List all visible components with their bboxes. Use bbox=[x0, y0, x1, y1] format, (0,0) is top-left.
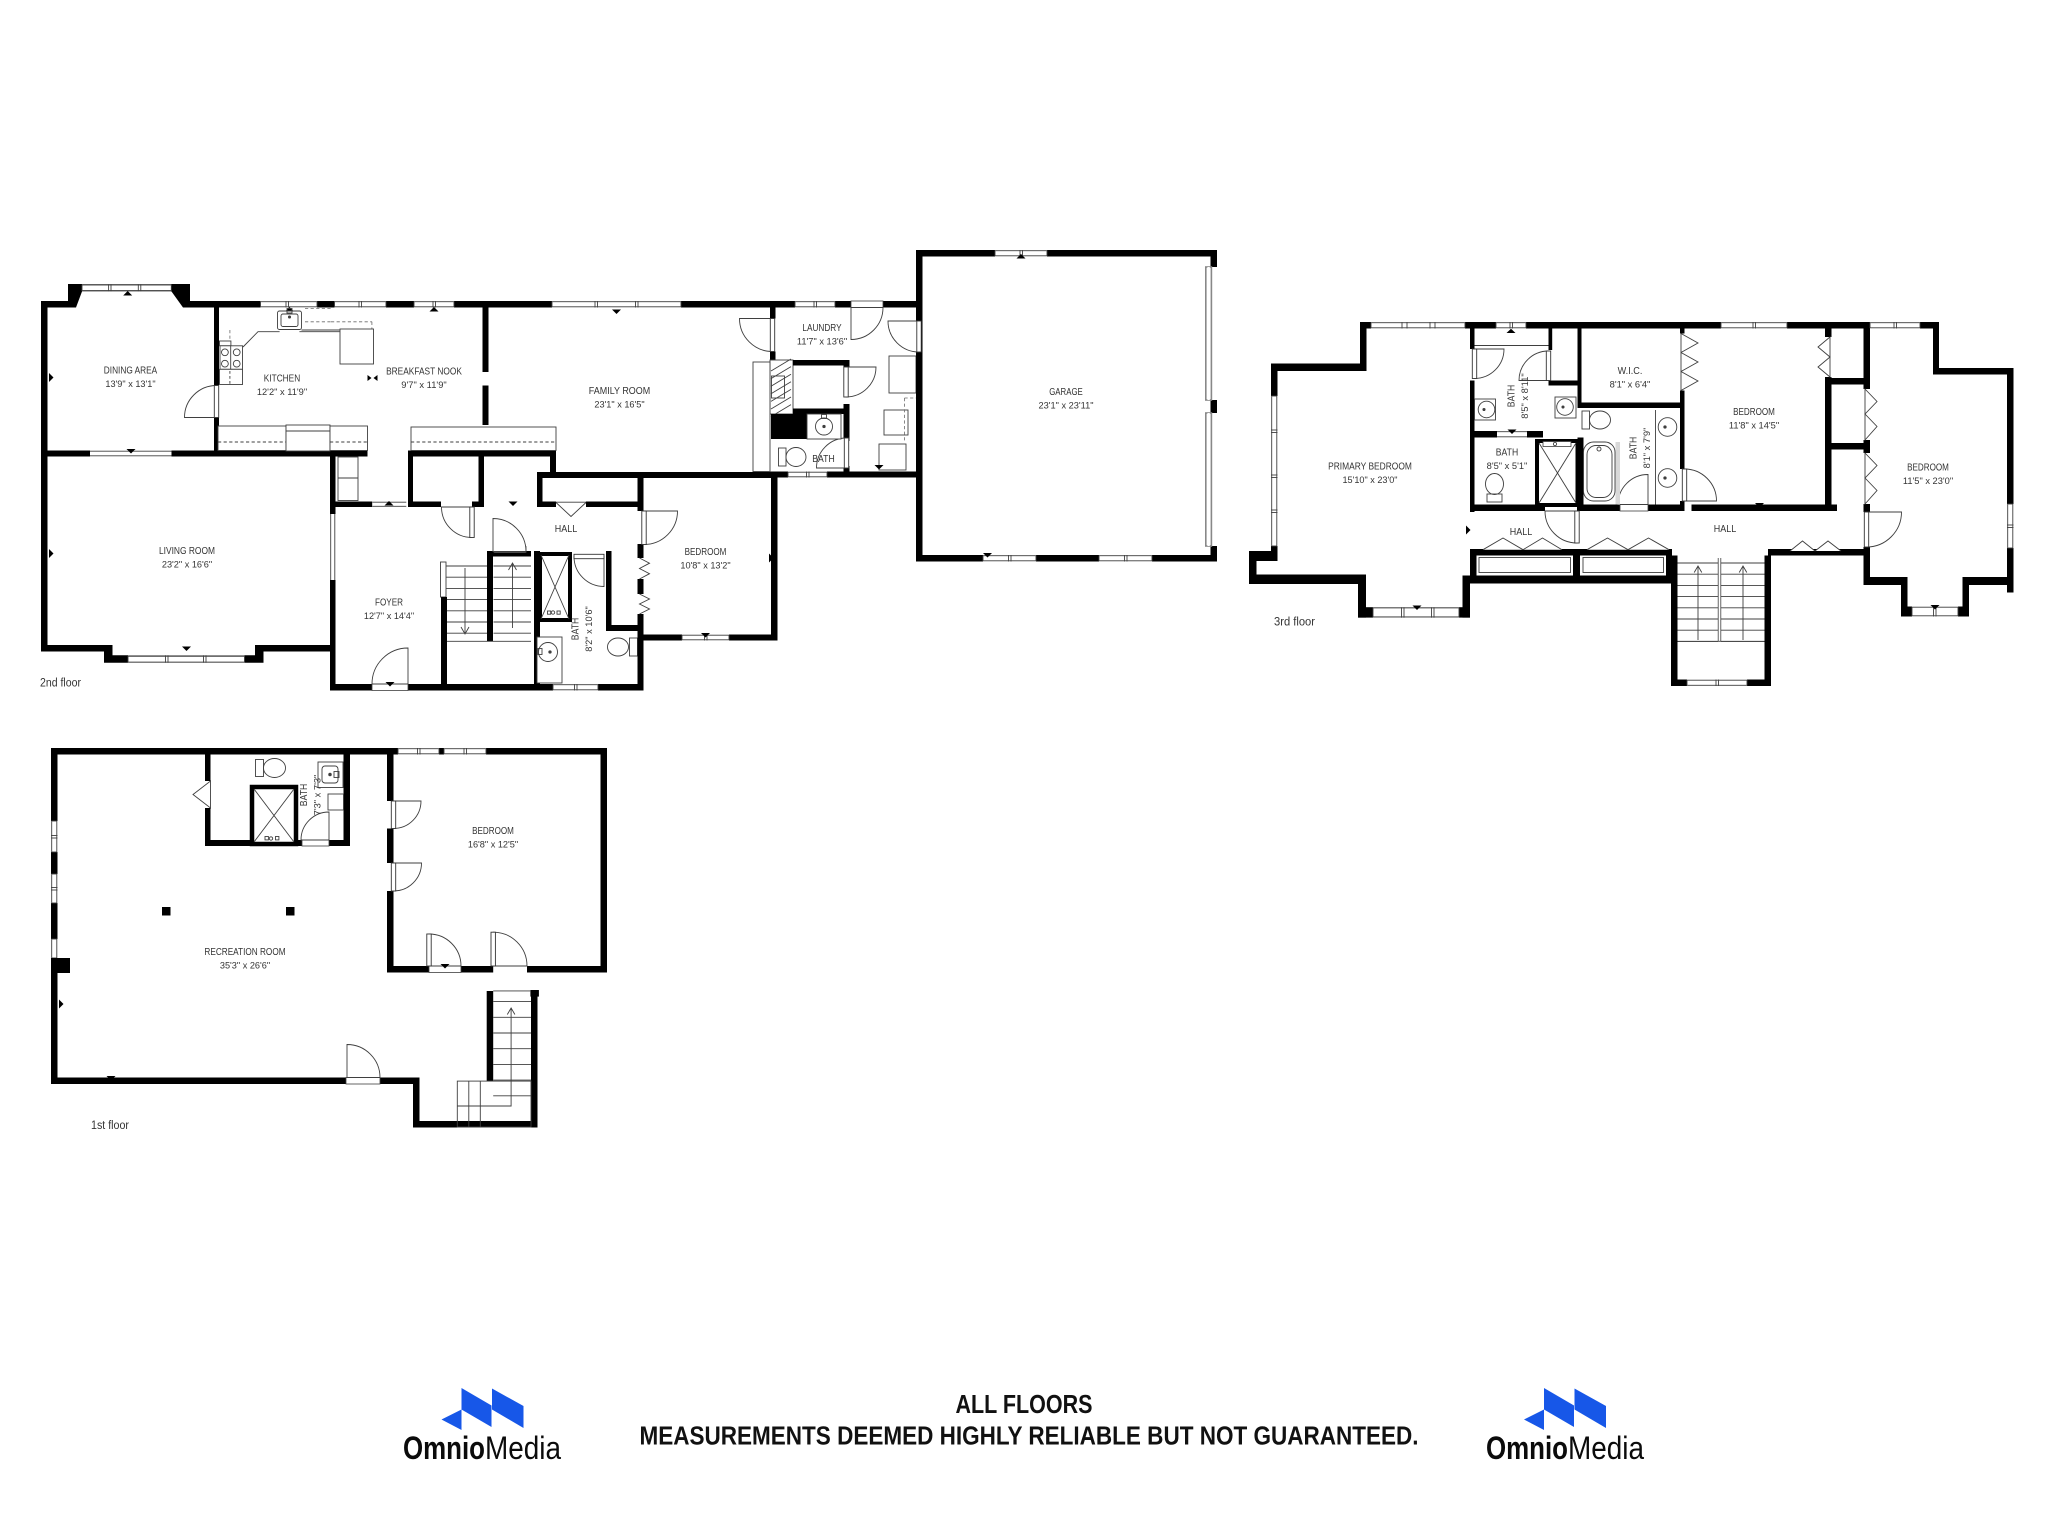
svg-text:9'7" x 11'9": 9'7" x 11'9" bbox=[401, 380, 447, 391]
svg-text:23'2" x 16'6": 23'2" x 16'6" bbox=[162, 560, 212, 571]
svg-text:KITCHEN: KITCHEN bbox=[264, 374, 300, 385]
svg-text:BATH: BATH bbox=[1496, 448, 1518, 459]
svg-text:RECREATION ROOM: RECREATION ROOM bbox=[204, 947, 285, 958]
svg-text:BATH: BATH bbox=[571, 618, 582, 640]
svg-text:BEDROOM: BEDROOM bbox=[472, 826, 514, 837]
svg-text:HALL: HALL bbox=[555, 524, 578, 535]
svg-text:DINING AREA: DINING AREA bbox=[104, 365, 158, 376]
svg-text:12'2" x 11'9": 12'2" x 11'9" bbox=[257, 387, 307, 398]
svg-text:8'5" x 5'1": 8'5" x 5'1" bbox=[1487, 461, 1528, 472]
svg-text:ALL FLOORS: ALL FLOORS bbox=[956, 1391, 1093, 1419]
svg-text:BEDROOM: BEDROOM bbox=[1907, 463, 1949, 474]
svg-text:7'3" x 7'3": 7'3" x 7'3" bbox=[313, 775, 324, 816]
svg-text:8'2" x 10'6": 8'2" x 10'6" bbox=[584, 606, 595, 652]
svg-text:8'1" x 7'9": 8'1" x 7'9" bbox=[1642, 428, 1653, 469]
svg-text:FOYER: FOYER bbox=[375, 598, 403, 609]
svg-text:BATH: BATH bbox=[1629, 437, 1640, 459]
svg-text:Omnio: Omnio bbox=[1486, 1430, 1568, 1466]
svg-text:W.I.C.: W.I.C. bbox=[1618, 366, 1643, 377]
svg-text:Media: Media bbox=[1568, 1430, 1644, 1466]
svg-text:Omnio: Omnio bbox=[403, 1430, 485, 1466]
svg-text:8'1" x 6'4": 8'1" x 6'4" bbox=[1610, 380, 1651, 391]
svg-text:15'10" x 23'0": 15'10" x 23'0" bbox=[1342, 475, 1397, 486]
svg-text:BREAKFAST NOOK: BREAKFAST NOOK bbox=[386, 366, 462, 377]
svg-text:BATH: BATH bbox=[812, 454, 834, 465]
svg-text:10'8" x 13'2": 10'8" x 13'2" bbox=[680, 561, 730, 572]
svg-text:12'7" x 14'4": 12'7" x 14'4" bbox=[364, 611, 414, 622]
svg-text:2nd floor: 2nd floor bbox=[40, 678, 81, 690]
svg-text:BATH: BATH bbox=[299, 784, 310, 806]
svg-text:16'8" x 12'5": 16'8" x 12'5" bbox=[468, 840, 518, 851]
svg-text:FAMILY ROOM: FAMILY ROOM bbox=[589, 386, 650, 397]
svg-text:Media: Media bbox=[485, 1430, 561, 1466]
svg-text:13'9" x 13'1": 13'9" x 13'1" bbox=[105, 379, 155, 390]
svg-text:LAUNDRY: LAUNDRY bbox=[802, 323, 841, 334]
svg-text:BEDROOM: BEDROOM bbox=[1733, 407, 1775, 418]
svg-text:35'3" x 26'6": 35'3" x 26'6" bbox=[220, 960, 270, 971]
svg-text:23'1" x 23'11": 23'1" x 23'11" bbox=[1038, 401, 1093, 412]
svg-text:HALL: HALL bbox=[1510, 527, 1533, 538]
svg-text:BATH: BATH bbox=[1507, 385, 1518, 407]
svg-text:11'7" x 13'6": 11'7" x 13'6" bbox=[797, 337, 847, 348]
svg-text:23'1" x 16'5": 23'1" x 16'5" bbox=[594, 400, 644, 411]
svg-text:GARAGE: GARAGE bbox=[1049, 387, 1083, 398]
svg-text:LIVING ROOM: LIVING ROOM bbox=[159, 546, 215, 557]
svg-text:BEDROOM: BEDROOM bbox=[685, 547, 727, 558]
svg-text:11'5" x 23'0": 11'5" x 23'0" bbox=[1903, 476, 1953, 487]
svg-text:MEASUREMENTS DEEMED HIGHLY REL: MEASUREMENTS DEEMED HIGHLY RELIABLE BUT … bbox=[640, 1423, 1419, 1451]
svg-text:1st floor: 1st floor bbox=[91, 1120, 129, 1132]
svg-text:8'5" x 8'11": 8'5" x 8'11" bbox=[1520, 373, 1531, 419]
svg-text:PRIMARY BEDROOM: PRIMARY BEDROOM bbox=[1328, 461, 1412, 472]
svg-text:3rd floor: 3rd floor bbox=[1274, 616, 1315, 628]
svg-text:HALL: HALL bbox=[1714, 524, 1737, 535]
svg-text:11'8" x 14'5": 11'8" x 14'5" bbox=[1729, 421, 1779, 432]
